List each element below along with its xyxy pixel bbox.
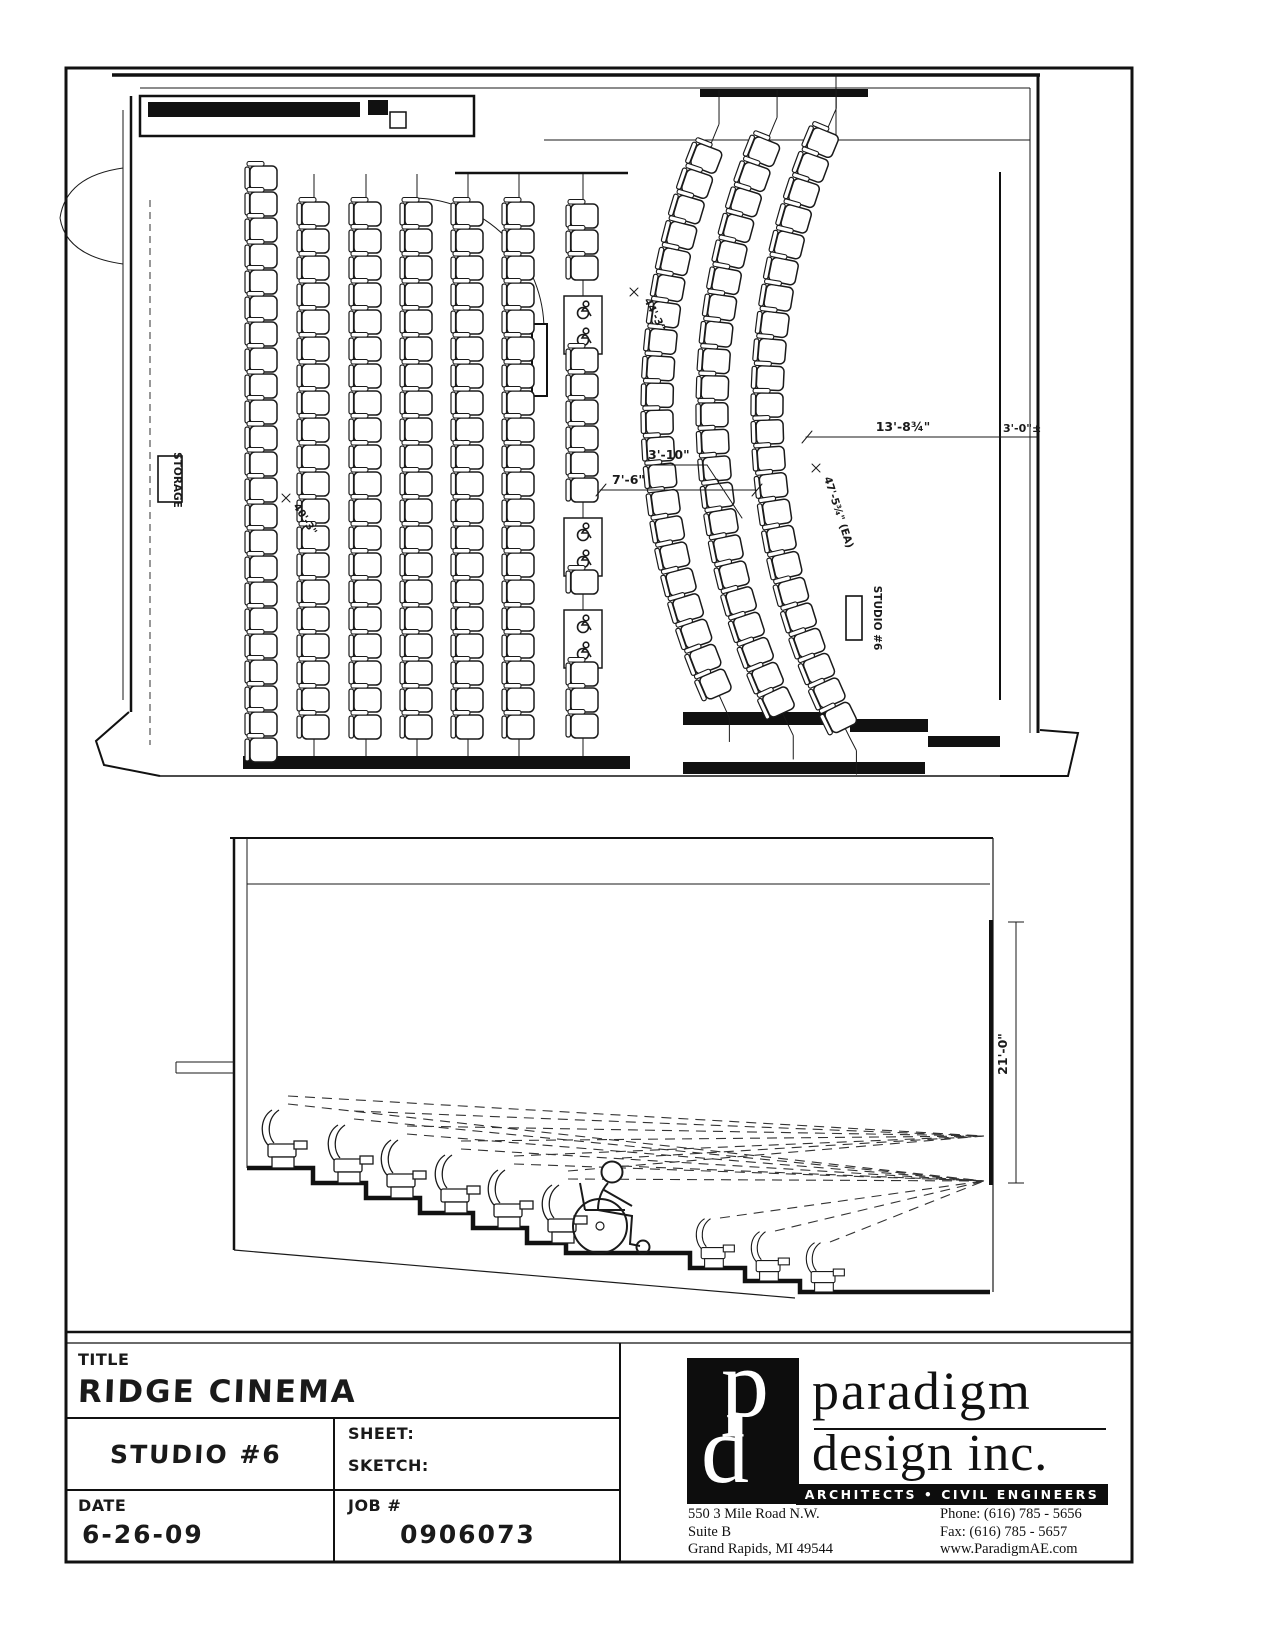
seat [502,603,534,632]
wheelchair-user [573,1162,650,1254]
seat [297,684,329,713]
seat [400,333,432,362]
seat [349,630,381,659]
seat [297,711,329,740]
seat [502,576,534,605]
seat [297,603,329,632]
seat [566,448,598,477]
seat [400,630,432,659]
studio-plan-label: STUDIO #6 [871,586,883,651]
seat [400,198,432,227]
reference-marker [812,464,820,472]
section-seat [435,1155,480,1213]
seat [400,549,432,578]
seat [400,252,432,281]
seat [752,441,786,472]
section-seat [696,1219,734,1268]
seat [751,361,784,391]
seat [349,252,381,281]
dim-row-to-row: 3'-10" [648,447,690,462]
seat [297,225,329,254]
firm-name-line1: paradigm [812,1360,1032,1422]
seat [349,306,381,335]
exit-door-arc [60,218,123,264]
seat [641,405,673,434]
sight-line [622,1166,984,1181]
seat [696,371,729,400]
seat [400,225,432,254]
seat [502,468,534,497]
seat [245,188,277,217]
seat [245,656,277,685]
sight-line [354,1111,984,1136]
seat [451,576,483,605]
wheelchair-wheel-icon [573,1199,627,1253]
seat [297,198,329,227]
seat [245,344,277,373]
seat [502,630,534,659]
seat [349,279,381,308]
firm-address: 550 3 Mile Road N.W. Suite B Grand Rapid… [688,1506,833,1559]
seat [451,360,483,389]
sight-line [720,1181,984,1218]
seat [297,414,329,443]
seat [696,398,728,427]
seat [245,370,277,399]
seat [400,495,432,524]
seat [349,711,381,740]
seat [566,252,598,281]
seat [349,684,381,713]
sight-lines [288,1096,984,1242]
seat [349,657,381,686]
seat [707,530,744,564]
storage-room: STORAGE [150,200,183,745]
firm-name-line2: design inc. [812,1424,1048,1483]
seat [451,333,483,362]
seat [649,511,685,545]
person-head [602,1162,623,1183]
seat [297,630,329,659]
seat [245,474,277,503]
seat [502,711,534,740]
studio-tag: STUDIO #6 [846,586,883,651]
accessible-seating-row [564,200,602,739]
section-view: 21'-0" [176,838,1024,1298]
title-label: TITLE [78,1350,129,1369]
seat [245,292,277,321]
seat [451,198,483,227]
seat [451,549,483,578]
seat [502,522,534,551]
seat [349,387,381,416]
seat [245,630,277,659]
date-value: 6-26-09 [81,1520,204,1549]
seat [245,734,277,763]
seat [297,387,329,416]
seat [349,549,381,578]
exit-door-arc [60,168,123,218]
seat [451,225,483,254]
logo-letter-d: d [701,1402,749,1498]
seat [641,378,674,407]
seat [245,604,277,633]
seat [349,198,381,227]
section-back-wall [176,838,247,1250]
seat [566,684,598,713]
seat [451,711,483,740]
straight-seating-rows [245,162,534,763]
section-seat [488,1170,533,1228]
seat [349,522,381,551]
seat [245,422,277,451]
seat [400,522,432,551]
seat [349,468,381,497]
seat [697,451,731,482]
seat [245,266,277,295]
seat [502,657,534,686]
seat [400,360,432,389]
section-seat [328,1125,373,1183]
seat [245,682,277,711]
seat [566,370,598,399]
seat [297,333,329,362]
seat [400,279,432,308]
seat [502,549,534,578]
seat [451,306,483,335]
plan-left-wall [60,96,160,776]
seat [245,708,277,737]
firm-logo: p d [687,1358,799,1504]
seat [297,252,329,281]
seat [502,279,534,308]
seat [451,387,483,416]
dim-row-to-curve: 7'-6" [612,472,645,487]
section-seat [751,1232,789,1281]
seat [566,566,598,595]
seat [566,226,598,255]
section-seat [262,1110,307,1168]
seat [566,474,598,503]
seat [760,520,797,554]
section-seat [542,1185,587,1243]
seat [502,414,534,443]
seat [297,279,329,308]
dim-curve-to-screen: 13'-8¾" [876,419,931,434]
seat [642,351,676,381]
fax-line: Fax: (616) 785 - 5657 [940,1524,1082,1542]
seat [400,684,432,713]
phone-line: Phone: (616) 785 - 5656 [940,1506,1082,1524]
sight-line [568,1179,984,1181]
seat [245,500,277,529]
seat [653,537,690,572]
reference-marker [282,494,290,502]
sight-line [514,1136,984,1156]
drawing-sheet: STORAGE STUDIO #6 13'-8¾" 3'-0"± 7'-6" 3… [0,0,1275,1649]
seat [349,603,381,632]
sketch-label: SKETCH: [348,1456,429,1475]
seat [756,494,792,527]
address-line: Grand Rapids, MI 49544 [688,1541,833,1559]
seat [566,422,598,451]
floor-plan: STORAGE STUDIO #6 13'-8¾" 3'-0"± 7'-6" 3… [60,75,1078,776]
job-number: 0906073 [399,1520,536,1549]
seat [400,711,432,740]
seat [297,468,329,497]
job-label: JOB # [348,1496,401,1515]
seat [349,333,381,362]
seat [502,387,534,416]
seat [751,415,784,444]
entry-vestibule [140,96,547,396]
seat [645,485,680,517]
seat [703,504,739,537]
seat [502,198,534,227]
seat [643,458,678,489]
seat [753,468,788,500]
section-seats [262,1110,844,1292]
seat [502,360,534,389]
stadium-steps [247,1168,990,1292]
seat [245,578,277,607]
seat [697,343,731,374]
seat [451,468,483,497]
seat [451,441,483,470]
seat [502,333,534,362]
seat [349,441,381,470]
seat [297,306,329,335]
seat [245,240,277,269]
seat [451,603,483,632]
website-line: www.ParadigmAE.com [940,1541,1082,1559]
seat [245,448,277,477]
seat [400,441,432,470]
seat [400,603,432,632]
reference-marker [630,288,638,296]
seat [566,200,598,229]
seat [451,279,483,308]
section-seat [806,1243,844,1292]
seat [349,225,381,254]
section-screen: 21'-0" [991,838,1024,1292]
seat [451,522,483,551]
dim-curve-radius-outer: 47'-5¾" (EA) [821,475,855,549]
seat [245,526,277,555]
seat [245,162,277,191]
seat [297,441,329,470]
seat [502,495,534,524]
seat [502,252,534,281]
sight-line [354,1119,984,1181]
seat [451,684,483,713]
curved-seating-rows [641,120,858,736]
seat [297,657,329,686]
seat [245,396,277,425]
firm-tagline: ARCHITECTS • CIVIL ENGINEERS [796,1484,1108,1505]
seat [451,495,483,524]
seat [502,225,534,254]
seat [566,658,598,687]
seat [696,425,729,455]
seat [297,549,329,578]
seat [400,657,432,686]
seat [400,468,432,497]
seat [297,576,329,605]
seat [245,552,277,581]
seat [400,306,432,335]
seat [451,414,483,443]
seat [451,252,483,281]
address-line: 550 3 Mile Road N.W. [688,1506,833,1524]
seat [502,306,534,335]
seat [566,710,598,739]
seat [349,576,381,605]
sight-line [568,1136,984,1171]
seat [349,414,381,443]
sight-line [407,1126,984,1136]
storage-label: STORAGE [171,452,183,508]
seat [451,630,483,659]
seat [502,684,534,713]
seat [297,360,329,389]
seat [566,344,598,373]
seat [245,318,277,347]
sheet-label: SHEET: [348,1424,414,1443]
firm-contact: Phone: (616) 785 - 5656 Fax: (616) 785 -… [940,1506,1082,1559]
sight-line [461,1136,984,1141]
seat [566,396,598,425]
date-label: DATE [78,1496,126,1515]
seat [349,495,381,524]
seat [400,414,432,443]
section-seat [381,1140,426,1198]
sight-line [622,1136,984,1158]
sheet-border [66,68,1132,1562]
seat [400,576,432,605]
drawing-title: RIDGE CINEMA [77,1374,357,1410]
sight-line [830,1181,984,1242]
studio-title: STUDIO #6 [109,1440,282,1469]
seat [400,387,432,416]
dim-screen-to-wall: 3'-0"± [1003,422,1041,435]
seat [349,360,381,389]
seat [451,657,483,686]
seat [699,477,734,509]
seat [502,441,534,470]
address-line: Suite B [688,1524,833,1542]
seat [751,388,783,417]
seat [245,214,277,243]
dim-screen-height: 21'-0" [995,1033,1010,1075]
